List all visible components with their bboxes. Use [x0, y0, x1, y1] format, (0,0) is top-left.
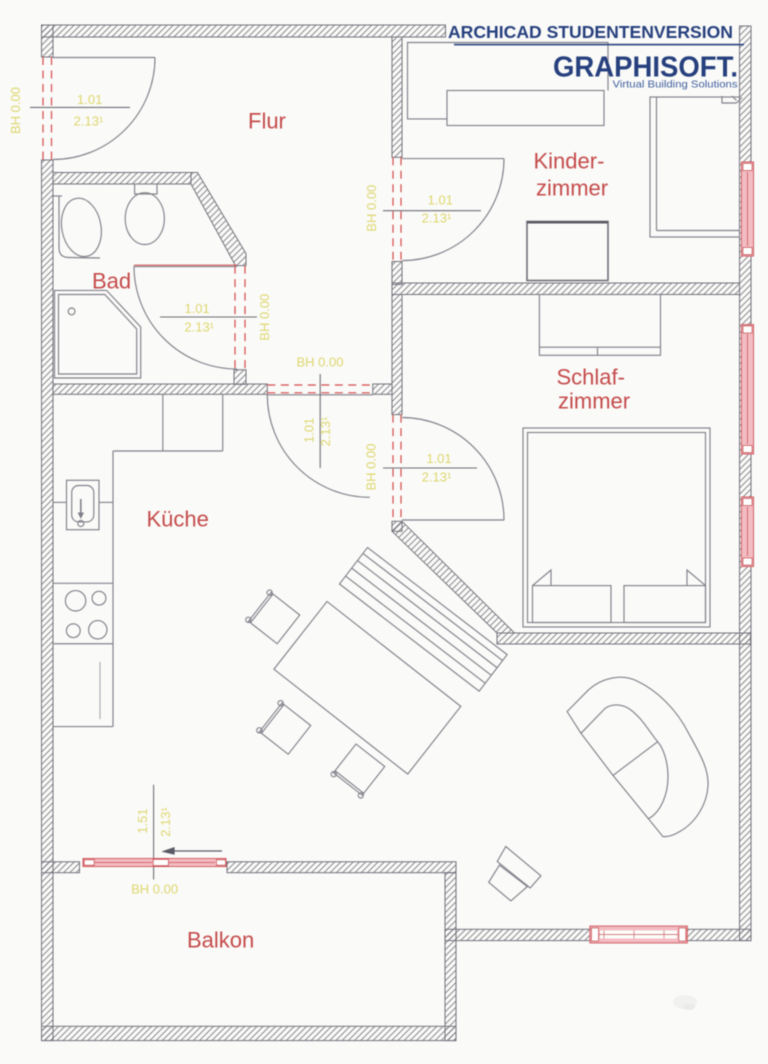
svg-text:1.01: 1.01 [428, 193, 453, 208]
svg-text:2.13¹: 2.13¹ [74, 114, 104, 129]
svg-text:BH 0.00: BH 0.00 [131, 882, 178, 897]
svg-text:1.01: 1.01 [426, 451, 451, 466]
svg-text:1.01: 1.01 [77, 92, 102, 107]
svg-text:BH 0.00: BH 0.00 [257, 294, 272, 341]
svg-text:BH 0.00: BH 0.00 [8, 87, 23, 134]
svg-text:Schlaf-: Schlaf- [557, 365, 625, 390]
svg-text:ARCHICAD STUDENTENVERSION: ARCHICAD STUDENTENVERSION [448, 22, 733, 42]
svg-text:Kinder-: Kinder- [534, 149, 605, 174]
svg-text:2.13¹: 2.13¹ [422, 211, 452, 226]
svg-text:BH 0.00: BH 0.00 [364, 185, 379, 232]
svg-text:Küche: Küche [147, 507, 209, 532]
svg-text:2.13¹: 2.13¹ [158, 807, 173, 837]
svg-text:zimmer: zimmer [558, 389, 630, 414]
svg-text:1.51: 1.51 [135, 808, 150, 833]
svg-text:BH 0.00: BH 0.00 [364, 444, 379, 491]
svg-text:Flur: Flur [248, 108, 286, 133]
svg-text:Virtual Building Solutions: Virtual Building Solutions [613, 79, 738, 91]
svg-text:BH 0.00: BH 0.00 [297, 355, 344, 370]
svg-text:zimmer: zimmer [536, 176, 608, 201]
svg-text:2.13¹: 2.13¹ [184, 320, 214, 335]
svg-text:Bad: Bad [92, 269, 131, 294]
svg-text:1.01: 1.01 [184, 301, 209, 316]
svg-text:Balkon: Balkon [187, 928, 254, 953]
svg-text:2.13¹: 2.13¹ [318, 416, 333, 446]
svg-text:2.13¹: 2.13¹ [422, 470, 452, 485]
svg-text:1.01: 1.01 [302, 418, 317, 443]
